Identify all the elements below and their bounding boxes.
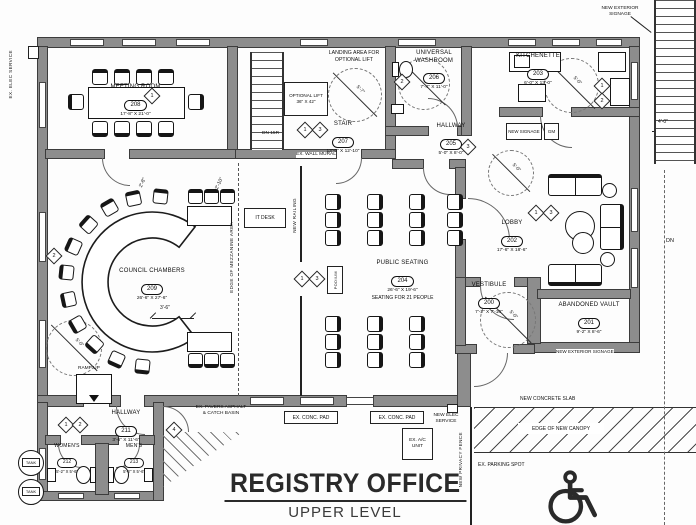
room-name: HALLWAY: [430, 123, 472, 131]
round-table: [572, 232, 594, 254]
ex-elec-service-label: EX. ELEC SERVICE: [8, 50, 14, 98]
gm-label: GM: [548, 129, 555, 134]
optional-lift-label: OPTIONAL LIFT: [289, 93, 323, 98]
door-marker-num: 1: [600, 83, 603, 89]
edge-of-area-label: EDGE OF MEZZANINE AREA: [229, 222, 235, 293]
wall: [462, 47, 471, 135]
room-label-womens: WOMEN'S 212 5'-2" X 5'-6": [46, 443, 88, 475]
it-desk-label: IT DESK: [255, 215, 274, 221]
chair: [92, 121, 108, 137]
wall: [500, 108, 542, 116]
window: [508, 39, 536, 46]
parking-edge-line: [664, 170, 665, 525]
door-arc: [474, 353, 508, 387]
chair: [220, 353, 235, 368]
chair: [136, 69, 152, 85]
window: [631, 62, 638, 100]
room-dims: 5'-2" X 5'-6": [114, 469, 154, 474]
wall: [46, 150, 104, 158]
chair: [447, 212, 463, 228]
new-exterior-signage-label: NEW EXTERIOR SIGNAGE: [590, 6, 650, 18]
chair: [325, 352, 341, 368]
elec-service-box: [447, 404, 458, 413]
ex-pavers-text: EX. PAVERS ASPHALT & CATCH BASIN: [196, 405, 246, 416]
room-note: SEATING FOR 21 PEOPLE: [350, 295, 455, 301]
dn-15r-label: DN 15R: [262, 131, 279, 137]
door-marker: 3: [543, 205, 560, 222]
room-label-public-seating: PUBLIC SEATING 204 26'-6" X 19'-6" SEATI…: [350, 260, 455, 302]
sofa: [548, 264, 602, 286]
new-railing-label: NEW RAILING: [292, 198, 298, 233]
tank-label: TANK: [26, 489, 36, 494]
room-dims: 7'-2" X 7'-10": [464, 310, 514, 316]
turning-circle-label: 5'-0": [571, 75, 581, 85]
turning-circle: 5'-0": [488, 150, 534, 196]
wall: [393, 160, 423, 168]
chair: [367, 194, 383, 210]
window: [122, 39, 156, 46]
door-marker-num: 2: [78, 422, 81, 428]
room-dims: 26'-6" X 27'-6": [106, 296, 198, 302]
room-name: PUBLIC SEATING: [350, 260, 455, 268]
door-marker-num: 1: [303, 127, 306, 133]
chair: [134, 358, 150, 374]
chair: [367, 334, 383, 350]
chair: [136, 121, 152, 137]
ex-wall-mural-label: EX. WALL MURAL: [296, 152, 336, 158]
wall: [538, 290, 630, 298]
chair: [325, 316, 341, 332]
door-marker-num: 1: [534, 210, 537, 216]
it-desk: IT DESK: [244, 208, 286, 228]
window: [70, 39, 104, 46]
room-number: 200: [478, 298, 500, 309]
turning-circle-label: 5'-0": [511, 163, 521, 173]
room-label-kitchenette: KITCHENETTE 203 6'-0" X 13'-0": [506, 53, 570, 86]
chair: [188, 94, 204, 110]
side-table-round: [600, 252, 615, 267]
chair: [125, 190, 143, 208]
room-label-vestibule: VESTIBULE 200 7'-2" X 7'-10": [464, 282, 514, 315]
railing-line: [300, 296, 302, 396]
room-dims: 6'-0" X 13'-0": [506, 81, 570, 87]
chair: [158, 69, 174, 85]
room-name: ABANDONED VAULT: [548, 302, 630, 310]
new-elec-service-label: NEW ELEC SERVICE: [428, 413, 464, 425]
dim-2-8: 2'-8": [138, 177, 148, 189]
chair: [367, 352, 383, 368]
room-name: LOBBY: [488, 220, 536, 228]
armchair-pair: [600, 204, 624, 250]
room-name: UNIVERSAL WASHROOM: [406, 50, 462, 65]
chair: [367, 230, 383, 246]
new-signage-label: NEW SIGNAGE: [508, 129, 539, 134]
window: [300, 39, 328, 46]
fridge: [598, 52, 626, 72]
ex-conc-pad-label: EX. CONC. PAD: [293, 415, 330, 421]
room-dims: 17'-6" X 18'-6": [488, 248, 536, 254]
kitchen-cabinet: [610, 78, 630, 106]
chair: [204, 353, 219, 368]
side-table-round: [602, 183, 617, 198]
ex-conc-pad-label: EX. CONC. PAD: [379, 415, 416, 421]
chair: [447, 194, 463, 210]
room-label-vault: ABANDONED VAULT 201 9'-2" X 8'-6": [548, 302, 630, 335]
edge-of-canopy-label: EDGE OF NEW CANOPY: [532, 426, 590, 432]
chair: [188, 189, 203, 204]
drawing-subtitle: UPPER LEVEL: [175, 504, 515, 521]
window: [631, 188, 638, 232]
wall: [450, 160, 465, 168]
door-arc: [423, 168, 450, 195]
chair: [58, 264, 74, 280]
chair: [409, 212, 425, 228]
room-number: 211: [115, 426, 137, 437]
door-marker-num: 4: [172, 427, 175, 433]
room-name: MEN'S: [114, 443, 154, 449]
room-dims: 5'-0" X 8'-0": [430, 151, 472, 157]
door-marker-num: 3: [549, 210, 552, 216]
door-marker-num: 1: [300, 276, 303, 282]
chair: [409, 352, 425, 368]
podium-label: PODIUM: [333, 271, 338, 289]
door-arc: [336, 158, 362, 184]
chair: [367, 212, 383, 228]
room-dims: 9'-2" X 8'-6": [548, 330, 630, 336]
door-marker-num: 1: [64, 422, 67, 428]
wall: [458, 352, 470, 406]
toilet-tank: [392, 62, 399, 77]
room-label-lobby: LOBBY 202 17'-6" X 18'-6": [488, 220, 536, 253]
chair: [325, 212, 341, 228]
wall: [362, 150, 395, 158]
window: [39, 320, 46, 368]
room-number: 208: [124, 100, 146, 111]
room-number: 206: [423, 73, 445, 84]
tank-label-box: TANK: [22, 487, 40, 496]
edge-of-area-line: [238, 163, 239, 396]
room-number: 201: [578, 318, 600, 329]
window: [398, 39, 436, 46]
railing-line: [300, 166, 302, 262]
door-marker-num: 2: [600, 98, 603, 104]
room-number: 209: [141, 284, 163, 295]
new-exterior-signage-label: NEW EXTERIOR SIGNAGE: [556, 349, 614, 355]
chair: [60, 291, 78, 309]
door-marker-num: 2: [52, 253, 55, 259]
chair: [367, 316, 383, 332]
room-number: 204: [391, 276, 413, 287]
window: [250, 397, 284, 405]
floor-plan: OPTIONAL LIFT 36" X 42": [0, 0, 696, 525]
room-label-council: COUNCIL CHAMBERS 209 26'-6" X 27'-6": [106, 268, 198, 301]
room-label-hallway-205: HALLWAY 205 5'-0" X 8'-0": [430, 123, 472, 156]
edge-of-canopy-box: EDGE OF NEW CANOPY: [518, 423, 604, 434]
door-marker-num: 2: [400, 79, 403, 85]
wall: [96, 444, 108, 494]
tank-label: TANK: [26, 460, 36, 465]
gm-box: GM: [544, 123, 559, 140]
chair: [220, 189, 235, 204]
chair: [152, 188, 168, 204]
window: [39, 82, 46, 128]
room-dims: 17'-8" X 21'-0": [98, 112, 173, 118]
ex-pavers-label: EX. PAVERS ASPHALT & CATCH BASIN: [194, 405, 248, 417]
podium: PODIUM: [327, 266, 343, 294]
new-elec-service-text: NEW ELEC SERVICE: [433, 413, 458, 424]
window: [552, 39, 580, 46]
window: [58, 493, 84, 499]
door-marker: 2: [46, 248, 63, 265]
optional-lift: OPTIONAL LIFT 36" X 42": [284, 82, 328, 116]
room-name: COUNCIL CHAMBERS: [106, 268, 198, 276]
drawing-title: REGISTRY OFFICE: [224, 468, 466, 502]
chair: [114, 69, 130, 85]
wall: [456, 345, 476, 353]
ex-conc-pad-box: EX. CONC. PAD: [284, 411, 338, 424]
landing-area-label: LANDING AREA FOR OPTIONAL LIFT: [318, 50, 390, 63]
dim-3-6: 3'-6": [160, 305, 170, 311]
room-name: KITCHENETTE: [506, 53, 570, 61]
chair: [409, 334, 425, 350]
elec-meter-box: [28, 46, 39, 59]
optional-lift-size: 36" X 42": [296, 99, 315, 104]
dim-4-0: 4'-0": [658, 119, 668, 125]
ramp-arrow-head: [89, 395, 99, 402]
door-threshold: [346, 397, 374, 405]
ex-conc-pad-box: EX. CONC. PAD: [370, 411, 424, 424]
room-dims: 26'-6" X 19'-6": [350, 288, 455, 294]
turning-circle: 5'-7": [328, 68, 382, 122]
room-number: 203: [527, 69, 549, 80]
new-concrete-slab-label: NEW CONCRETE SLAB: [520, 396, 575, 402]
room-number: 213: [124, 458, 144, 468]
chair: [68, 94, 84, 110]
door-marker: 3: [309, 271, 326, 288]
chair: [204, 189, 219, 204]
side-table: [187, 332, 232, 352]
chair: [409, 230, 425, 246]
washroom-sink: [391, 104, 404, 114]
window: [631, 248, 638, 288]
room-dims: 5'-2" X 5'-6": [46, 469, 88, 474]
room-name: VESTIBULE: [464, 282, 514, 290]
room-dims: 7'-4" X 11'-0": [406, 85, 462, 91]
dn-label: DN: [666, 238, 674, 245]
kitchen-island: [518, 84, 546, 102]
door-arc: [102, 158, 130, 186]
room-name: MEETING ROOM: [98, 84, 173, 92]
turning-circle-label: 5'-7": [355, 85, 365, 95]
new-signage-box: NEW SIGNAGE: [506, 123, 542, 140]
window: [596, 39, 622, 46]
wheelchair-icon: [542, 470, 604, 525]
door-marker-num: 3: [315, 276, 318, 282]
chair: [92, 69, 108, 85]
room-label-stair: STAIR 207 13'-6" X 12'-10": [322, 121, 364, 154]
door-marker: 2: [72, 417, 89, 434]
room-name: WOMEN'S: [46, 443, 88, 449]
ac-unit-box: EX. A/C UNIT: [402, 428, 433, 460]
room-number: 212: [57, 458, 77, 468]
room-name: STAIR: [322, 121, 364, 129]
room-label-meeting: MEETING ROOM 208 17'-8" X 21'-0": [98, 84, 173, 117]
window: [39, 212, 46, 262]
wall: [228, 47, 237, 150]
ac-unit-label: EX. A/C UNIT: [403, 438, 432, 450]
chair: [158, 121, 174, 137]
chair: [325, 194, 341, 210]
room-number: 207: [332, 137, 354, 148]
room-number: 202: [501, 236, 523, 247]
chair: [325, 230, 341, 246]
wall: [154, 403, 163, 500]
wall: [386, 127, 428, 135]
chair: [447, 230, 463, 246]
window: [300, 397, 334, 405]
chair: [188, 353, 203, 368]
sofa: [548, 174, 602, 196]
chair: [409, 316, 425, 332]
leader-line: [630, 16, 651, 33]
wall: [130, 150, 236, 158]
window: [176, 39, 210, 46]
room-label-hallway-211: HALLWAY 211 3'-6" X 11'-6": [100, 410, 152, 443]
room-name: HALLWAY: [100, 410, 152, 418]
chair: [114, 121, 130, 137]
window: [114, 493, 140, 499]
room-label-washroom: UNIVERSAL WASHROOM 206 7'-4" X 11'-0": [406, 50, 462, 91]
exterior-stair: [654, 0, 696, 164]
tank-label-box: TANK: [22, 458, 40, 467]
title-block: REGISTRY OFFICE UPPER LEVEL: [175, 468, 515, 521]
side-table: [187, 206, 232, 226]
room-number: 205: [440, 139, 462, 150]
room-label-mens: MEN'S 213 5'-2" X 5'-6": [114, 443, 154, 475]
ramp-up-label: RAMP UP: [78, 366, 100, 372]
chair: [409, 194, 425, 210]
chair: [325, 334, 341, 350]
